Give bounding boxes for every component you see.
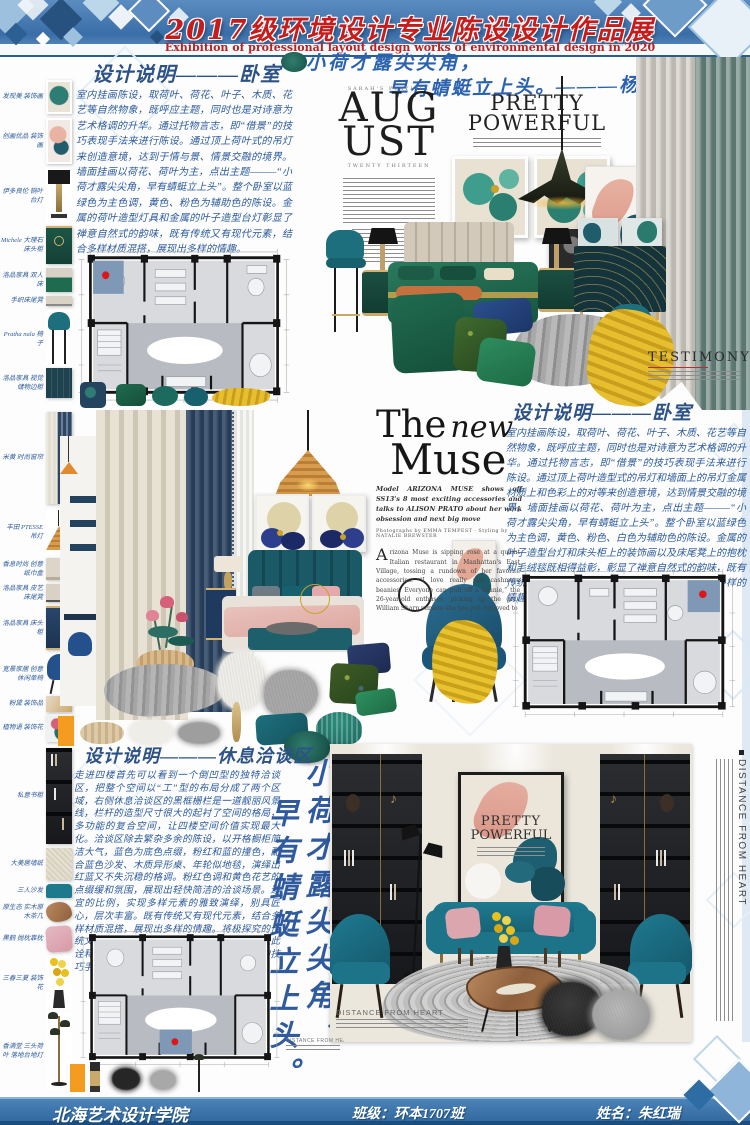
nightstand-right bbox=[538, 268, 578, 312]
small-artwork bbox=[622, 218, 662, 248]
sidebar-item-flowers: 三春三夏 装饰花 bbox=[0, 956, 72, 1010]
sculpt-lamp-shade bbox=[214, 556, 242, 572]
sidebar-item-label: 三春三夏 装饰花 bbox=[0, 974, 43, 992]
bed-thumbnail bbox=[46, 268, 72, 292]
testimony-red-rule bbox=[648, 367, 708, 368]
chair-leg bbox=[50, 680, 55, 694]
muse-dropcap: A bbox=[376, 548, 388, 562]
bar-stool-seat bbox=[326, 258, 366, 268]
sidebar-item-bar-stool: Pratha nala 椅子 bbox=[0, 312, 72, 366]
lamp-base bbox=[51, 214, 67, 218]
gray-fur-pillow bbox=[264, 670, 318, 718]
white-fur-small bbox=[130, 720, 172, 744]
footer-student-name: 姓名：朱红瑞 bbox=[596, 1103, 680, 1123]
pendant-cord bbox=[561, 76, 563, 150]
lotus-bloom bbox=[176, 612, 188, 622]
sidebar-item-sideboard: 洛品家具 视觉储物边柜 bbox=[0, 368, 72, 398]
sofa-thumbnail bbox=[46, 884, 72, 898]
section-title-bedroom2: 设计说明———卧室 bbox=[512, 398, 732, 425]
music-note-icon: ♪ bbox=[610, 790, 617, 806]
testimony-title: TESTIMONY bbox=[648, 350, 746, 365]
sleeping-cat bbox=[266, 622, 318, 635]
book-spines bbox=[614, 884, 616, 900]
table-lamp-stem bbox=[380, 244, 385, 270]
mask-decor bbox=[346, 794, 360, 812]
sideboard-thumbnail bbox=[46, 368, 72, 398]
sidebar-item-label: 洛品家具 皮艺床尾凳 bbox=[0, 584, 43, 602]
lamp-base bbox=[51, 1082, 67, 1086]
resin-streak bbox=[495, 981, 536, 996]
book-spine bbox=[54, 788, 56, 800]
sidebar-item-art-teal: 发现美 装饰画 bbox=[0, 80, 72, 114]
lotus-leaf-shape bbox=[489, 193, 517, 221]
table-lamp-stem bbox=[554, 244, 559, 270]
sidebar-item-bench: 手织床尾凳 bbox=[0, 296, 72, 306]
sidebar-item-label: Pratha nala 椅子 bbox=[0, 330, 43, 348]
pendant-cord bbox=[58, 510, 59, 526]
floor-plan-1 bbox=[76, 248, 292, 404]
pretty-line2: POWERFUL bbox=[448, 114, 626, 134]
wallpaper-thumbnail bbox=[46, 848, 72, 880]
exhibition-poster: 2017级环境设计专业陈设设计作品展 Exhibition of profess… bbox=[0, 0, 750, 1125]
distance-small-title: DISTANCE FROM HEART bbox=[286, 1038, 344, 1044]
stool-seat bbox=[48, 312, 70, 330]
wood-table-thumbnail bbox=[46, 902, 72, 922]
sidebar-item-double-bed: 洛品家具 双人床 bbox=[0, 268, 72, 292]
sidebar-item-label: 宽景家居 创意休闲单椅 bbox=[0, 665, 43, 683]
section-title-lounge: 设计说明———休息洽谈区 bbox=[84, 742, 324, 768]
lotus-arrangement bbox=[146, 596, 196, 658]
new-muse-block: Thenew Muse Model ARIZONA MUSE shows off… bbox=[376, 410, 522, 614]
gold-dot bbox=[340, 534, 346, 540]
section-body-bedroom1: 室内挂画陈设，取荷叶、荷花、叶子、木质、花艺等自然物象，既呼应主题，同时也是对诗… bbox=[76, 88, 292, 257]
stool-leg bbox=[52, 330, 54, 364]
lamp-shade bbox=[48, 170, 70, 184]
muse-dek: Model ARIZONA MUSE shows off SS13's 8 mo… bbox=[376, 485, 522, 524]
muse-title-muse: Muse bbox=[390, 443, 522, 477]
sidebar-item-label: 植物语 装饰花 bbox=[0, 723, 43, 732]
sideboard-gold-pattern bbox=[574, 246, 666, 312]
distance-vertical-block: DISTANCE FROM HEART bbox=[703, 750, 747, 1022]
muse-body: rizona Muse is sipping rosé at a quaint … bbox=[376, 548, 520, 613]
gray-fur-small bbox=[150, 1070, 176, 1090]
muse-body-wrap: A rizona Muse is sipping rosé at a quain… bbox=[376, 548, 520, 613]
stick-lamp bbox=[198, 1058, 200, 1092]
teal-plant-shape bbox=[505, 861, 535, 883]
pillow-thumbnail bbox=[116, 384, 146, 406]
footer-bar: 北海艺术设计学院 班级：环本1707班 姓名：朱红瑞 bbox=[0, 1097, 750, 1125]
white-fur-pillow bbox=[218, 652, 266, 710]
sidebar-item-label: 创画优品 装饰画 bbox=[0, 132, 43, 150]
floor-plan-2 bbox=[510, 568, 738, 718]
sidebar-item-wallpaper: 大美居墙纸 bbox=[0, 848, 72, 880]
vase bbox=[53, 990, 65, 1008]
caption-lines bbox=[715, 759, 733, 1021]
moon-lotus-artwork bbox=[312, 494, 366, 552]
poster-text-line1: PRETTY bbox=[461, 815, 561, 828]
book-spines bbox=[344, 850, 346, 866]
sidebar-item-table-lamp: 伊多良伦 铜叶台灯 bbox=[0, 170, 72, 222]
sidebar-item-sofa: 三人沙发 bbox=[0, 884, 72, 898]
pretty-powerful-block: PRETTY POWERFUL bbox=[448, 94, 626, 150]
lotus-leaf-shape bbox=[499, 169, 519, 189]
book-spines bbox=[390, 884, 392, 900]
emerald-pillow bbox=[355, 687, 398, 716]
nightstand-thumbnail bbox=[46, 226, 72, 264]
book-spine bbox=[51, 754, 53, 766]
champagne-glasses bbox=[458, 948, 461, 964]
footer-class-label: 班级：环本1707班 bbox=[352, 1103, 464, 1123]
pillow-thumbnail bbox=[80, 382, 106, 408]
pink-pillow-thumbnail bbox=[45, 925, 73, 953]
poster-caption-lines bbox=[477, 847, 545, 856]
sidebar-item-label: 香息时尚 创意纸巾盒 bbox=[0, 560, 43, 578]
pretty-powerful-poster: PRETTY POWERFUL bbox=[458, 772, 564, 910]
yellow-blooms bbox=[492, 912, 501, 921]
floor-plan-3 bbox=[78, 928, 282, 1068]
small-table-lamp bbox=[90, 1062, 100, 1092]
stick-lamp-head bbox=[194, 1054, 204, 1060]
sidebar-item-label: 发现美 装饰画 bbox=[0, 92, 43, 101]
distance-caption: DISTANCE FROM HEART bbox=[336, 1008, 468, 1028]
black-fur-small bbox=[112, 1068, 140, 1090]
teal-plant-shape bbox=[531, 867, 565, 901]
armchair-leg bbox=[676, 984, 684, 1018]
caption-lines bbox=[336, 1019, 468, 1028]
gray-fur-pillow bbox=[592, 990, 650, 1040]
august-tracklist-lines bbox=[343, 178, 435, 224]
pendant-cord bbox=[307, 410, 309, 452]
square-bullet bbox=[739, 750, 744, 755]
caption-lines bbox=[473, 138, 601, 150]
poem-line1: 小荷才露尖尖角， bbox=[306, 48, 482, 75]
orange-accent-block bbox=[58, 716, 74, 746]
flowers-thumbnail bbox=[46, 956, 72, 1010]
armchair-seat bbox=[332, 962, 390, 984]
living-room-scene: ♪ ♪ PRETTY POWERFUL bbox=[330, 744, 692, 1042]
sidebar-item-label: 香满堂 三头荷叶 落地台地灯 bbox=[0, 1042, 43, 1060]
sidebar-item-label: 原生态 实木原木茶几 bbox=[0, 903, 43, 921]
book-spine bbox=[55, 754, 57, 766]
orange-pendant bbox=[60, 462, 78, 474]
sidebar-item-label: 黑鹤 抛枕靠枕 bbox=[0, 934, 43, 943]
yellow-throw-thumbnail bbox=[212, 388, 270, 406]
floor-lamp-shade bbox=[423, 842, 445, 858]
bar-stool-back bbox=[326, 230, 364, 260]
mask-decor bbox=[660, 794, 674, 812]
leaf-shade bbox=[50, 1028, 60, 1035]
lamp-thumbnail bbox=[46, 170, 72, 222]
emerald-pillow bbox=[475, 336, 537, 387]
gold-dot bbox=[277, 530, 283, 536]
sidebar-item-label: 三人沙发 bbox=[0, 886, 43, 895]
sidebar-item-pink-pillow: 黑鹤 抛枕靠枕 bbox=[0, 926, 72, 952]
bed-base bbox=[222, 596, 364, 652]
sidebar-item-label: 伊多良伦 铜叶台灯 bbox=[0, 187, 43, 205]
distance-caption-title: DISTANCE FROM HEART bbox=[336, 1008, 468, 1017]
muse-credits: Photographs by EMMA TEMPEST · Styling by… bbox=[376, 529, 522, 539]
stool-thumbnail bbox=[46, 312, 72, 366]
bar-stool-leg bbox=[356, 268, 358, 332]
lamp-stem bbox=[56, 184, 62, 212]
sidebar-item-label: 洛品家具 视觉储物边柜 bbox=[0, 374, 43, 392]
bed-pillow bbox=[484, 268, 514, 280]
gold-figurine bbox=[232, 702, 241, 742]
pouf-thumbnail bbox=[184, 388, 208, 406]
sidebar-item-label: 洛品家具 床头柜 bbox=[0, 619, 43, 637]
pink-pillow bbox=[533, 904, 571, 937]
sidebar-item-bookshelf: 私意书柜 bbox=[0, 748, 72, 844]
sidebar-item-label: 粉黛 装饰品 bbox=[0, 699, 43, 708]
bar-stool-footrest bbox=[332, 314, 360, 316]
pink-pillow bbox=[445, 906, 482, 939]
table-lamp-shade bbox=[368, 228, 398, 244]
sidebar-item-label: 洛品家具 双人床 bbox=[0, 271, 43, 289]
footer-school-name: 北海艺术设计学院 bbox=[52, 1101, 188, 1125]
table-lamp-shade bbox=[542, 228, 572, 244]
august-subtitle: TWENTY THIRTEEN bbox=[330, 163, 448, 169]
sidebar-item-label: 丰田 PTESSE吊灯 bbox=[0, 523, 43, 541]
yellow-flower-arrangement bbox=[482, 912, 526, 970]
flower-vase bbox=[496, 946, 512, 968]
lotus-leaf-icon bbox=[281, 52, 307, 72]
beige-pouf bbox=[80, 722, 124, 744]
leaf-shade bbox=[60, 1020, 70, 1027]
small-artwork bbox=[578, 218, 618, 248]
distance-small-block: DISTANCE FROM HEART bbox=[286, 1038, 344, 1051]
sidebar-item-label: 手织床尾凳 bbox=[0, 296, 43, 305]
orange-accent-block bbox=[70, 1064, 85, 1092]
sidebar-item-nightstand: Michele 大理石床头柜 bbox=[0, 226, 72, 264]
lotus-leaf bbox=[168, 636, 194, 646]
bar-stool-leg bbox=[334, 268, 336, 332]
sidebar-item-label: 私意书柜 bbox=[0, 791, 43, 800]
stool-leg bbox=[64, 330, 66, 364]
pendant-glow bbox=[296, 478, 320, 492]
handle-ring bbox=[54, 236, 64, 246]
bed-pillow bbox=[398, 266, 434, 280]
moon-lotus-artwork bbox=[255, 494, 309, 552]
music-note-icon: ♪ bbox=[390, 790, 397, 806]
bed-pillow bbox=[440, 266, 476, 280]
lotus-seedpod bbox=[491, 185, 499, 193]
yellow-blooms bbox=[50, 958, 58, 966]
book-spines bbox=[656, 850, 658, 866]
bookshelf-thumbnail bbox=[46, 748, 72, 844]
distance-vertical-title: DISTANCE FROM HEART bbox=[736, 759, 747, 1021]
leaf-shade bbox=[48, 1012, 58, 1019]
sidebar-item-label: 米黄 时尚窗帘 bbox=[0, 453, 43, 462]
bedroom-scene-1 bbox=[326, 222, 666, 414]
pouf-thumbnail bbox=[152, 386, 178, 406]
pendant-cord bbox=[68, 436, 69, 462]
section-title-bedroom1: 设计说明———卧室 bbox=[92, 58, 302, 87]
gray-fur-small bbox=[178, 722, 220, 744]
lotus-bloom bbox=[160, 596, 174, 608]
caption-lines bbox=[286, 1045, 340, 1051]
desk-chair bbox=[68, 632, 92, 656]
sidebar-item-floor-lamp: 香满堂 三头荷叶 落地台地灯 bbox=[0, 1012, 72, 1090]
hairpin-leg bbox=[516, 1010, 518, 1036]
sidebar-item-art-pink: 创画优品 装饰画 bbox=[0, 118, 72, 164]
artwork-leaf bbox=[637, 221, 657, 243]
blue-lotus-shape bbox=[281, 532, 305, 550]
artwork-leaf bbox=[583, 223, 601, 243]
august-title-bottom: UST bbox=[330, 126, 448, 160]
caption-lines bbox=[648, 371, 740, 381]
testimony-block: TESTIMONY bbox=[648, 350, 746, 381]
artwork-thumbnail bbox=[46, 118, 72, 164]
white-blob bbox=[465, 863, 501, 899]
poster-text-line2: POWERFUL bbox=[461, 829, 561, 842]
sidebar-item-label: 大美居墙纸 bbox=[0, 859, 43, 868]
sidebar-item-tea-table: 原生态 实木原木茶几 bbox=[0, 902, 72, 922]
sidebar-item-label: Michele 大理石床头柜 bbox=[0, 236, 43, 254]
floor-lamp-thumbnail bbox=[46, 1012, 72, 1090]
lotus-bloom bbox=[146, 610, 159, 621]
gold-ring-decor bbox=[300, 584, 330, 614]
book-spine bbox=[62, 818, 64, 830]
artwork-thumbnail bbox=[46, 80, 72, 114]
bench-thumbnail bbox=[46, 296, 72, 306]
